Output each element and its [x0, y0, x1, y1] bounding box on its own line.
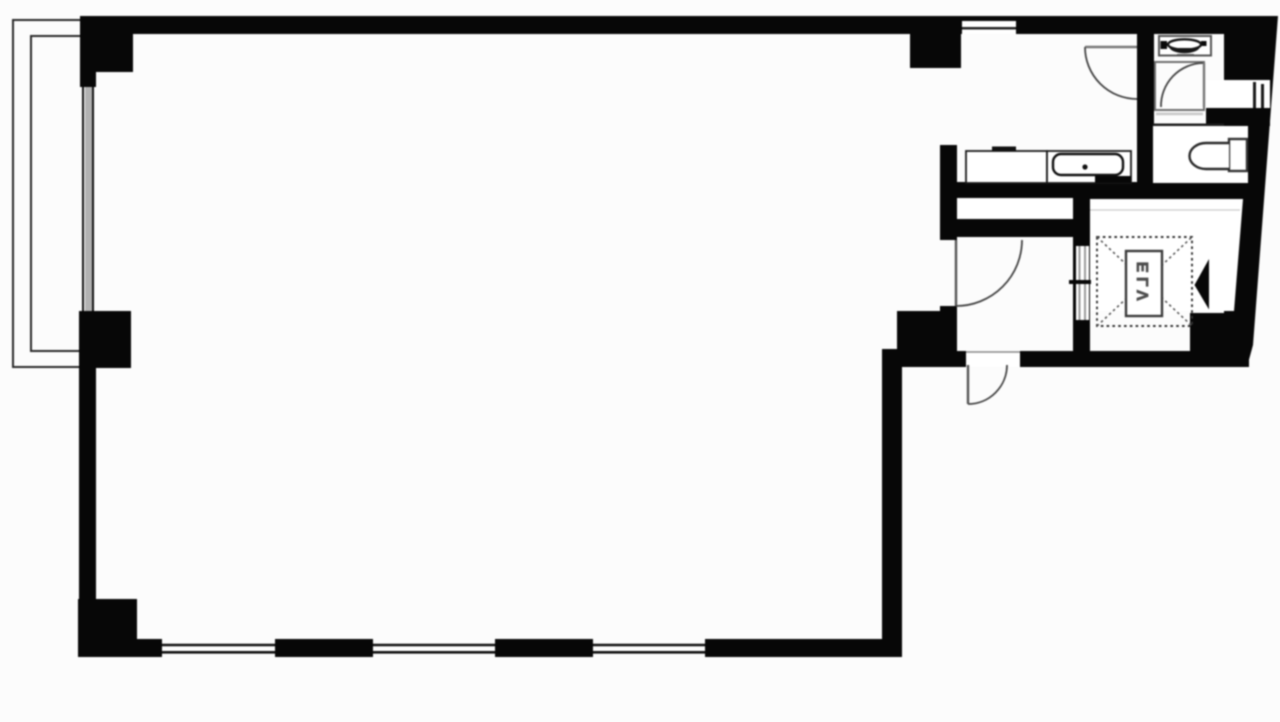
- svg-text:ELV: ELV: [1135, 262, 1152, 305]
